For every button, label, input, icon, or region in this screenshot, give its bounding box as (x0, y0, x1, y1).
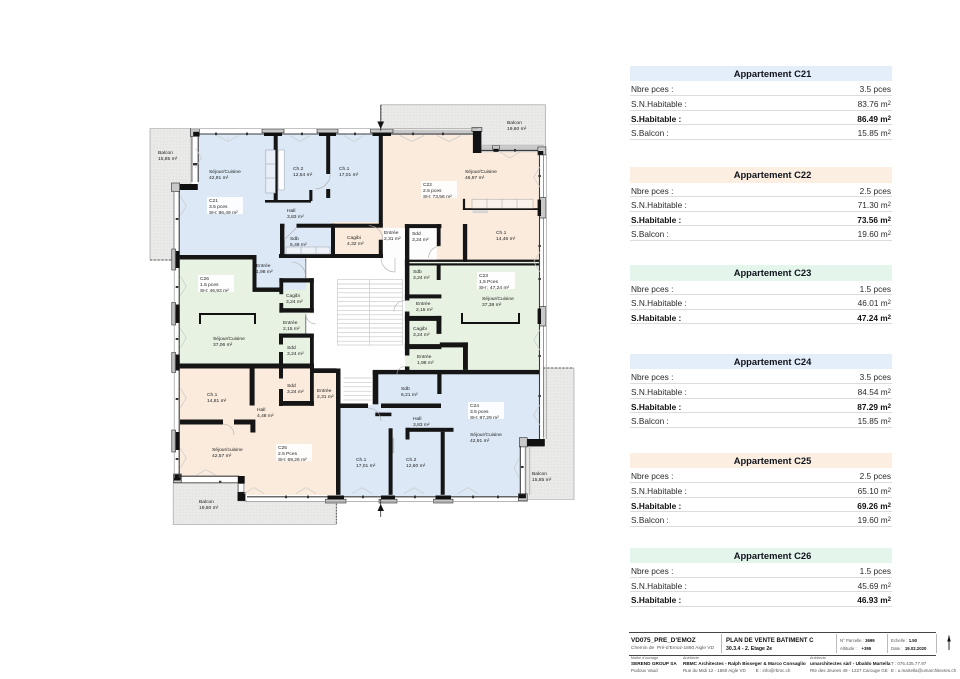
svg-text:SH: 69,26 m²: SH: 69,26 m² (278, 457, 307, 463)
svg-text:C25: C25 (278, 445, 287, 451)
svg-text:17,01 m²: 17,01 m² (356, 463, 376, 469)
svg-text:19,60 m²: 19,60 m² (199, 505, 219, 511)
svg-text:3.5 pces: 3.5 pces (470, 409, 489, 415)
svg-text:C26: C26 (200, 276, 209, 282)
svg-text:Cagibi: Cagibi (413, 326, 427, 332)
svg-text:Ch.2: Ch.2 (293, 166, 304, 172)
svg-text:1,98 m²: 1,98 m² (256, 269, 273, 275)
svg-text:Entrée: Entrée (283, 320, 298, 326)
svg-text:3,24 m²: 3,24 m² (287, 351, 304, 357)
svg-text:14,46 m²: 14,46 m² (496, 236, 516, 242)
svg-text:Sdd: Sdd (287, 345, 296, 351)
svg-text:42,91 m²: 42,91 m² (209, 175, 229, 181)
svg-text:19,60 m²: 19,60 m² (507, 126, 527, 132)
svg-text:Séjour/Cuisine: Séjour/Cuisine (465, 169, 497, 175)
svg-text:Sdb: Sdb (401, 386, 410, 392)
svg-text:3,83 m²: 3,83 m² (413, 422, 430, 428)
svg-text:Hall: Hall (257, 407, 265, 413)
svg-text:2,31 m²: 2,31 m² (384, 236, 401, 242)
svg-text:5,49 m²: 5,49 m² (290, 242, 307, 248)
svg-text:42,91 m²: 42,91 m² (470, 438, 490, 444)
svg-text:SH: 73,56 m²: SH: 73,56 m² (423, 194, 452, 200)
svg-text:2,15 m²: 2,15 m² (283, 326, 300, 332)
svg-text:Sdd: Sdd (412, 231, 421, 237)
svg-text:4,48 m²: 4,48 m² (257, 413, 274, 419)
svg-text:3,24 m²: 3,24 m² (287, 389, 304, 395)
svg-text:Sdb: Sdb (413, 269, 422, 275)
svg-text:Séjour/Cuisine: Séjour/Cuisine (213, 336, 245, 342)
svg-text:17,01 m²: 17,01 m² (339, 172, 359, 178)
svg-text:2.5 pces: 2.5 pces (423, 188, 442, 194)
svg-text:37,06 m²: 37,06 m² (213, 342, 233, 348)
svg-text:3,83 m²: 3,83 m² (287, 214, 304, 220)
svg-text:C23: C23 (479, 273, 488, 279)
svg-text:2,31 m²: 2,31 m² (317, 394, 334, 400)
svg-text:Hall: Hall (287, 208, 295, 214)
svg-text:Entrée: Entrée (417, 354, 432, 360)
svg-text:Balcon: Balcon (507, 120, 522, 126)
svg-text:C21: C21 (209, 198, 218, 204)
svg-text:1,98 m²: 1,98 m² (417, 360, 434, 366)
svg-text:3,24 m²: 3,24 m² (413, 332, 430, 338)
svg-text:3,24 m²: 3,24 m² (413, 275, 430, 281)
svg-text:1.5 pces: 1.5 pces (200, 282, 219, 288)
svg-text:C22: C22 (423, 182, 432, 188)
svg-text:3,24 m²: 3,24 m² (286, 299, 303, 305)
svg-text:SH: 46,93 m²: SH: 46,93 m² (200, 288, 229, 294)
svg-text:C24: C24 (470, 403, 479, 409)
svg-text:46,97 m²: 46,97 m² (465, 175, 485, 181)
svg-text:12,60 m²: 12,60 m² (406, 463, 426, 469)
svg-text:3,24 m²: 3,24 m² (412, 237, 429, 243)
svg-text:4,32 m²: 4,32 m² (347, 241, 364, 247)
svg-text:SH: 86,49 m²: SH: 86,49 m² (209, 210, 238, 216)
svg-text:Sdd: Sdd (287, 383, 296, 389)
svg-text:Séjour/Cuisine: Séjour/Cuisine (470, 432, 502, 438)
svg-text:Cagibi: Cagibi (286, 293, 300, 299)
svg-text:14,81 m²: 14,81 m² (207, 398, 227, 404)
svg-text:Ch.1: Ch.1 (496, 230, 507, 236)
svg-text:Balcon: Balcon (532, 471, 547, 477)
svg-text:37,38 m²: 37,38 m² (482, 302, 502, 308)
svg-text:Séjour/Cuisine: Séjour/Cuisine (209, 169, 241, 175)
svg-text:Entrée: Entrée (384, 230, 399, 236)
svg-text:Ch.1: Ch.1 (207, 392, 218, 398)
svg-text:Ch.1: Ch.1 (356, 457, 367, 463)
svg-text:Sdb: Sdb (290, 236, 299, 242)
svg-text:Entrée: Entrée (317, 388, 332, 394)
svg-text:2,15 m²: 2,15 m² (416, 307, 433, 313)
svg-text:Cagibi: Cagibi (347, 235, 361, 241)
svg-text:Entrée: Entrée (416, 301, 431, 307)
svg-text:Séjour/cuisine: Séjour/cuisine (212, 447, 243, 453)
svg-text:42,57 m²: 42,57 m² (212, 453, 232, 459)
svg-text:Hall: Hall (413, 416, 421, 422)
svg-text:Balcon: Balcon (199, 499, 214, 505)
svg-text:2.5 Pces: 2.5 Pces (278, 451, 298, 457)
svg-text:6,21 m²: 6,21 m² (401, 392, 418, 398)
svg-text:SH : 47,24 m²: SH : 47,24 m² (479, 285, 510, 291)
svg-text:Ch.2: Ch.2 (406, 457, 417, 463)
svg-text:Entrée: Entrée (256, 263, 271, 269)
svg-text:15,85 m²: 15,85 m² (158, 156, 178, 162)
svg-text:12,54 m²: 12,54 m² (293, 172, 313, 178)
svg-text:Ch.1: Ch.1 (339, 166, 350, 172)
svg-text:Séjour/Cuisine: Séjour/Cuisine (482, 296, 514, 302)
svg-text:3.5 pces: 3.5 pces (209, 204, 228, 210)
svg-text:SH: 87,29 m²: SH: 87,29 m² (470, 415, 499, 421)
svg-text:15,85 m²: 15,85 m² (532, 477, 552, 483)
svg-text:1,5 Pces: 1,5 Pces (479, 279, 499, 285)
svg-text:Balcon: Balcon (158, 150, 173, 156)
